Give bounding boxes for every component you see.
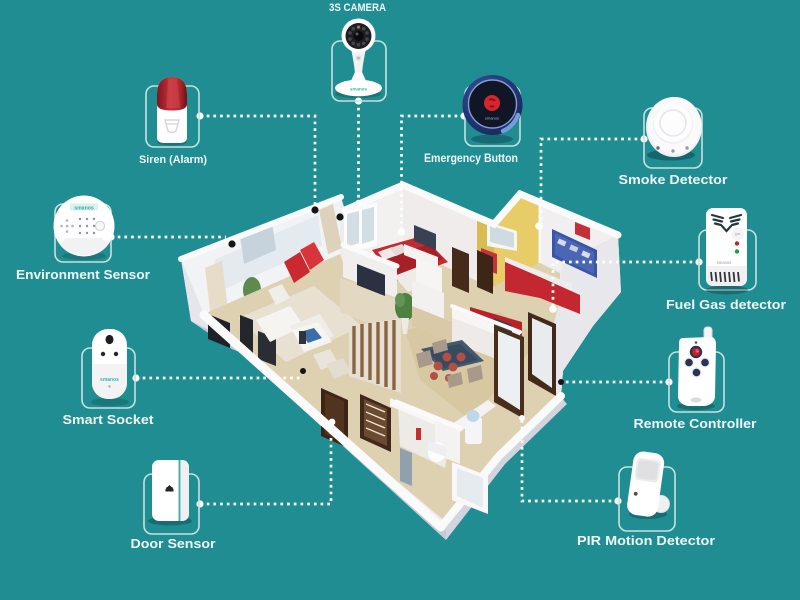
svg-text:smanos: smanos [717, 260, 732, 265]
svg-text:smanos: smanos [74, 206, 94, 212]
svg-text:gas: gas [735, 232, 741, 236]
svg-text:Siren (Alarm): Siren (Alarm) [139, 154, 207, 166]
svg-text:smanos: smanos [485, 116, 499, 121]
svg-text:3S CAMERA: 3S CAMERA [329, 2, 386, 14]
svg-text:smanos: smanos [100, 377, 119, 383]
svg-text:Door Sensor: Door Sensor [131, 536, 216, 551]
svg-text:Environment Sensor: Environment Sensor [16, 267, 150, 282]
svg-text:Fuel Gas detector: Fuel Gas detector [666, 297, 786, 312]
svg-text:Smoke Detector: Smoke Detector [619, 172, 728, 187]
svg-text:PIR Motion Detector: PIR Motion Detector [577, 533, 715, 548]
svg-text:smanos: smanos [350, 87, 368, 92]
svg-text:Remote Controller: Remote Controller [634, 416, 757, 431]
svg-text:Smart Socket: Smart Socket [63, 412, 155, 427]
svg-text:Emergency Button: Emergency Button [424, 153, 518, 165]
